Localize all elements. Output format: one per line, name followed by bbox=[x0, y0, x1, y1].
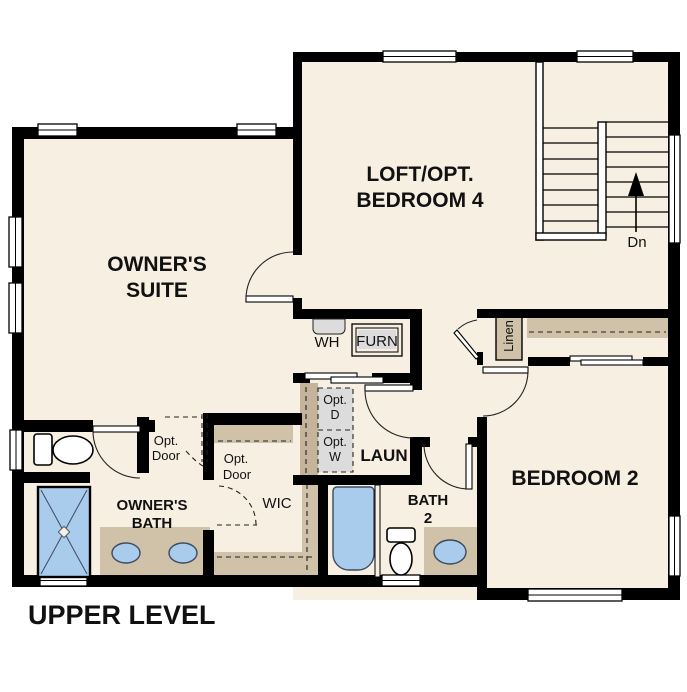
room-label-owners-suite: OWNER'S bbox=[107, 253, 207, 276]
room-label-loft: LOFT/OPT. bbox=[366, 163, 473, 186]
label-opt-door: Door bbox=[223, 467, 252, 482]
window bbox=[38, 124, 77, 136]
window bbox=[383, 51, 456, 62]
sink-icon bbox=[112, 543, 140, 563]
floor-plan-page: OWNER'S SUITE LOFT/OPT. BEDROOM 4 BEDROO… bbox=[0, 0, 687, 687]
tub-partition bbox=[375, 485, 380, 577]
bath2-door-leaf bbox=[466, 444, 472, 489]
laundry-door-leaf bbox=[365, 385, 413, 391]
label-opt-door: Opt. bbox=[154, 433, 179, 448]
label-opt-washer: W bbox=[329, 450, 341, 464]
label-opt-dryer: Opt. bbox=[323, 393, 347, 407]
room-label-bedroom-2: BEDROOM 2 bbox=[511, 467, 638, 490]
label-opt-door: Door bbox=[152, 448, 181, 463]
window bbox=[237, 124, 276, 136]
laundry-cabinet bbox=[300, 383, 318, 475]
water-heater-icon bbox=[313, 319, 345, 334]
label-opt-washer: Opt. bbox=[323, 435, 347, 449]
toilet-room-door-leaf bbox=[93, 426, 140, 432]
wic-shelf-bottom bbox=[214, 552, 318, 575]
toilet-bowl-icon bbox=[390, 543, 412, 575]
window bbox=[9, 283, 22, 333]
label-furnace: FURN bbox=[356, 333, 398, 350]
room-label-loft: BEDROOM 4 bbox=[356, 189, 484, 212]
toilet-bowl-icon bbox=[53, 436, 93, 464]
window bbox=[382, 575, 420, 586]
bedroom2-closet-shelf bbox=[527, 318, 668, 338]
window bbox=[577, 51, 633, 62]
room-label-owners-suite: SUITE bbox=[126, 279, 188, 302]
window bbox=[669, 135, 680, 243]
room-label-bath-2: BATH bbox=[408, 492, 449, 509]
label-opt-door: Opt. bbox=[224, 451, 249, 466]
window bbox=[10, 430, 22, 470]
bathtub-icon bbox=[333, 487, 374, 570]
room-label-bath-2: 2 bbox=[424, 510, 432, 527]
utility-closet-bypass-door bbox=[331, 377, 383, 383]
toilet-tank-icon bbox=[34, 434, 52, 465]
bedroom2-closet-bypass-door bbox=[581, 360, 643, 365]
bedroom2-door-leaf bbox=[483, 367, 528, 373]
room-label-owners-bath: OWNER'S bbox=[116, 497, 187, 514]
sink-icon bbox=[169, 543, 197, 563]
page-title: UPPER LEVEL bbox=[28, 600, 216, 630]
floor-plan-drawing: OWNER'S SUITE LOFT/OPT. BEDROOM 4 BEDROO… bbox=[0, 0, 687, 687]
stair-rail-left bbox=[536, 62, 543, 240]
room-label-owners-bath: BATH bbox=[132, 515, 173, 532]
toilet-tank-icon bbox=[387, 528, 415, 542]
label-water-heater: WH bbox=[315, 334, 340, 351]
room-label-wic: WIC bbox=[262, 495, 291, 512]
window bbox=[528, 589, 622, 601]
label-opt-dryer: D bbox=[330, 408, 339, 422]
wic-shelf-top bbox=[214, 425, 293, 443]
label-linen: Linen bbox=[501, 320, 516, 352]
sink-icon bbox=[434, 540, 466, 564]
owners-suite-door-leaf bbox=[246, 296, 293, 302]
stair-divider bbox=[598, 122, 606, 235]
stair-bottom-edge bbox=[536, 233, 606, 240]
window bbox=[9, 217, 22, 267]
label-stairs-down: Dn bbox=[627, 234, 646, 251]
room-label-laundry: LAUN bbox=[360, 446, 407, 465]
window bbox=[669, 516, 680, 576]
